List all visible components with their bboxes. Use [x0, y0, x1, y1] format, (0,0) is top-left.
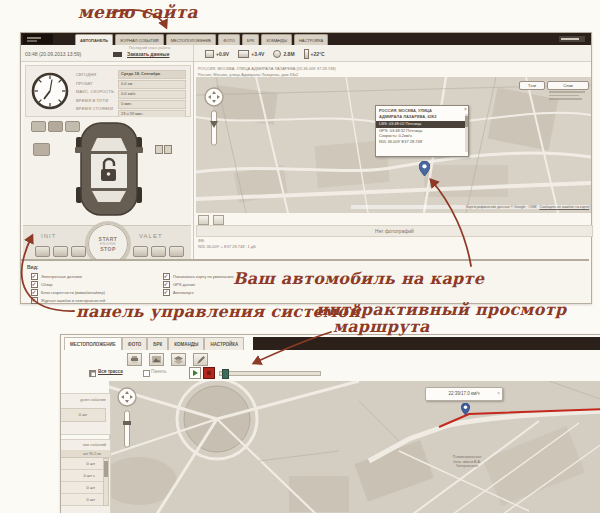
tab-commands[interactable]: КОМАНДЫ: [261, 34, 292, 45]
temperature-value: +22°C: [311, 51, 325, 57]
summary-label-parktime: ВРЕМЯ СТОЯНКИ: [76, 105, 114, 114]
stop-button[interactable]: [203, 367, 215, 379]
map-report-link[interactable]: Сообщить об ошибке на карте: [539, 205, 589, 209]
left-panel-divider: [193, 61, 194, 259]
gsm-icon: [113, 52, 122, 57]
route-map[interactable]: 22:39/17.0 км/ч × Психиатрическая боль. …: [109, 381, 600, 513]
map-layers-button[interactable]: Слои: [547, 81, 589, 90]
aux-button-4[interactable]: [133, 246, 148, 257]
play-button[interactable]: [189, 367, 201, 379]
tooltip-close-icon[interactable]: ×: [497, 388, 500, 400]
print-icon[interactable]: [213, 215, 224, 225]
init-label: INIT: [41, 233, 56, 239]
checkbox-autostart[interactable]: [163, 289, 170, 296]
last-event-title: днее событие: [80, 397, 106, 402]
battery-value: +0.9V: [216, 51, 229, 57]
annotation-route-view-line2: маршрута: [333, 317, 430, 336]
engine-control-bar: INIT VALET START ENGINE STOP: [23, 225, 191, 261]
photo-tools: [198, 215, 224, 225]
route-view-window: МЕСТОПОЛОЖЕНИЕ ФОТО БРК КОМАНДЫ НАСТРОЙК…: [60, 334, 600, 513]
tab-brk[interactable]: БРК: [147, 337, 168, 350]
map-tags-button[interactable]: Тэги: [519, 81, 545, 90]
event-row[interactable]: 0 шт: [60, 458, 104, 470]
tab-brk[interactable]: БРК: [242, 34, 260, 45]
vehicle-info-popup: × РОССИЯ, МОСКВА, УЛИЦА АДМИРАЛА ЛАЗАРЕВ…: [375, 105, 469, 157]
poi-label: Психиатрическая боль. имени В.А. Гиляров…: [431, 455, 503, 469]
popup-address-1: РОССИЯ, МОСКВА, УЛИЦА: [376, 106, 468, 114]
route-menu-tabs: МЕСТОПОЛОЖЕНИЕ ФОТО БРК КОМАНДЫ НАСТРОЙК…: [64, 337, 244, 350]
aux-button-2[interactable]: [53, 246, 68, 257]
panel-checkbox[interactable]: [143, 370, 150, 377]
checkbox-errors-log[interactable]: [31, 297, 38, 304]
vehicle-pin[interactable]: [419, 161, 430, 176]
stop-label: STOP: [100, 246, 116, 252]
view-option-label: Электронные датчики: [41, 274, 82, 279]
status-divider: [193, 45, 194, 61]
print-icon[interactable]: [127, 353, 142, 366]
annotation-car-on-map: Ваш автомобиль на карте: [233, 269, 484, 288]
summary-value-today: Среда 18. Сентябрь: [118, 70, 186, 79]
page: АВТОПАНЕЛЬ ЖУРНАЛ СОБЫТИЙ МЕСТОПОЛОЖЕНИЕ…: [0, 0, 600, 513]
map-pan-control[interactable]: [205, 88, 223, 106]
panel-checkbox-label: Панель: [151, 369, 167, 374]
events-table-meta: авт 90.2 км: [60, 450, 110, 458]
last-event-count: 0 шт: [60, 408, 106, 422]
view-options-title: Вид:: [27, 264, 39, 270]
battery-icon: [205, 50, 214, 58]
last-event-card: днее событие 0 шт: [60, 393, 111, 435]
partner-logo: [559, 36, 585, 42]
key-icon-1: [155, 145, 163, 154]
map-address-line1: РОССИЯ, МОСКВА, УЛИЦА АДМИРАЛА ЛАЗАРЕВА …: [198, 66, 336, 71]
edit-icon[interactable]: [193, 353, 208, 366]
daily-summary-card: СЕГОДНЯ ПРОБЕГ МАКС. СКОРОСТЬ ВРЕМЯ В ПУ…: [25, 65, 191, 117]
antenna-value: 2.8М: [283, 51, 294, 57]
session-label: Последний сеанс работы: [129, 46, 170, 50]
map-attribution: Картографические данные © Google · OSM С…: [351, 205, 589, 209]
clock-icon: [30, 71, 70, 111]
power-icon: [238, 50, 249, 58]
popup-scrollbar[interactable]: [465, 114, 468, 152]
tab-location[interactable]: МЕСТОПОЛОЖЕНИЕ: [166, 34, 217, 45]
events-scrollbar[interactable]: [103, 458, 109, 506]
beacon-meta-coords: N55 36.009' + E37 28.748', 1 дБ: [198, 244, 256, 249]
summary-value-drivetime: 0 мин: [118, 100, 186, 109]
key-icon-2: [164, 145, 172, 154]
event-row[interactable]: 0 шт: [60, 494, 104, 506]
menu-bar-dark: [253, 337, 600, 350]
tab-photo[interactable]: ФОТО: [122, 337, 147, 350]
layer-options-lines: [549, 91, 585, 100]
tab-photo[interactable]: ФОТО: [218, 34, 240, 45]
power-value: +3.4V: [251, 51, 264, 57]
whole-track-link[interactable]: Вся трасса: [98, 369, 123, 374]
brand-logo: [23, 34, 53, 44]
order-data-link[interactable]: Заказать данные: [127, 51, 169, 57]
valet-label: VALET: [139, 233, 163, 239]
autostart-icon[interactable]: [33, 143, 50, 156]
aux-button-3[interactable]: [71, 246, 86, 257]
tab-settings[interactable]: НАСТРОЙКА: [294, 34, 328, 45]
tab-autopanel[interactable]: АВТОПАНЕЛЬ: [75, 34, 113, 45]
map-toolbar: [127, 353, 208, 366]
device-stats: +0.9V +3.4V 2.8М +22°C: [205, 49, 325, 59]
annotation-site-menu: меню сайта: [78, 2, 198, 22]
tab-settings[interactable]: НАСТРОЙКА: [204, 337, 244, 350]
antenna-icon: [273, 50, 281, 58]
beacon-meta-label: ФВ:: [198, 238, 205, 243]
event-row[interactable]: 0 шт: [60, 482, 104, 494]
car-top-view: [73, 119, 145, 219]
view-option-label: GPS датчик: [173, 282, 195, 287]
car-state-icon-2[interactable]: [48, 121, 63, 132]
map-zoom-slider[interactable]: [210, 111, 218, 145]
summary-label-mileage: ПРОБЕГ: [76, 80, 114, 89]
photo-icon[interactable]: [149, 353, 164, 366]
event-row[interactable]: 0 шт с: [60, 470, 104, 482]
events-log-title: кол событий: [83, 442, 106, 447]
events-log-card: кол событий авт 90.2 км 0 шт 0 шт с 0 шт…: [60, 439, 111, 513]
thermometer-icon: [304, 49, 309, 59]
layers-icon[interactable]: [171, 353, 186, 366]
tab-commands[interactable]: КОМАНДЫ: [168, 337, 204, 350]
popup-address-2: АДМИРАЛА ЛАЗАРЕВА, 63К2: [376, 114, 468, 120]
speed-tooltip: 22:39/17.0 км/ч ×: [425, 387, 503, 401]
no-photos-bar: Нет фотографий: [196, 225, 593, 237]
summary-value-mileage: 0.0 км: [118, 80, 186, 89]
summary-label-maxspeed: МАКС. СКОРОСТЬ: [76, 88, 114, 97]
aux-button-6[interactable]: [169, 246, 184, 257]
aux-button-1[interactable]: [35, 246, 50, 257]
summary-label-today: СЕГОДНЯ: [76, 71, 114, 80]
view-option-label: Показывать карту по умолчанию: [173, 274, 234, 279]
map-zoom-slider[interactable]: [123, 411, 131, 447]
route-marker-pin[interactable]: [461, 403, 470, 415]
view-option-label: Обзор: [41, 282, 53, 287]
map-pan-control[interactable]: [118, 388, 136, 406]
last-session-datetime: 03:48 (20.09.2013 13:59): [25, 51, 81, 57]
playback-slider[interactable]: [219, 371, 321, 376]
view-option-label: Блок секретности (иммобилайзер): [41, 290, 105, 295]
car-status-panel: [23, 117, 191, 225]
tab-event-log[interactable]: ЖУРНАЛ СОБЫТИЙ: [115, 34, 164, 45]
view-option-label: Автозапуск: [173, 290, 194, 295]
aux-button-5[interactable]: [151, 246, 166, 257]
grid-icon: [89, 370, 96, 377]
popup-coords-row: N55 36.009' E37 28.748': [376, 139, 468, 145]
slider-handle[interactable]: [222, 369, 229, 379]
summary-label-drivetime: ВРЕМЯ В ПУТИ: [76, 97, 114, 106]
popup-close-icon[interactable]: ×: [464, 106, 467, 112]
tab-location[interactable]: МЕСТОПОЛОЖЕНИЕ: [64, 337, 122, 350]
summary-value-maxspeed: 0.0 км/ч: [118, 90, 186, 99]
tracker-dashboard-window: АВТОПАНЕЛЬ ЖУРНАЛ СОБЫТИЙ МЕСТОПОЛОЖЕНИЕ…: [20, 32, 592, 304]
site-menu-tabs: АВТОПАНЕЛЬ ЖУРНАЛ СОБЫТИЙ МЕСТОПОЛОЖЕНИЕ…: [75, 34, 328, 45]
car-state-icon-1[interactable]: [31, 121, 46, 132]
camera-icon[interactable]: [198, 215, 209, 225]
